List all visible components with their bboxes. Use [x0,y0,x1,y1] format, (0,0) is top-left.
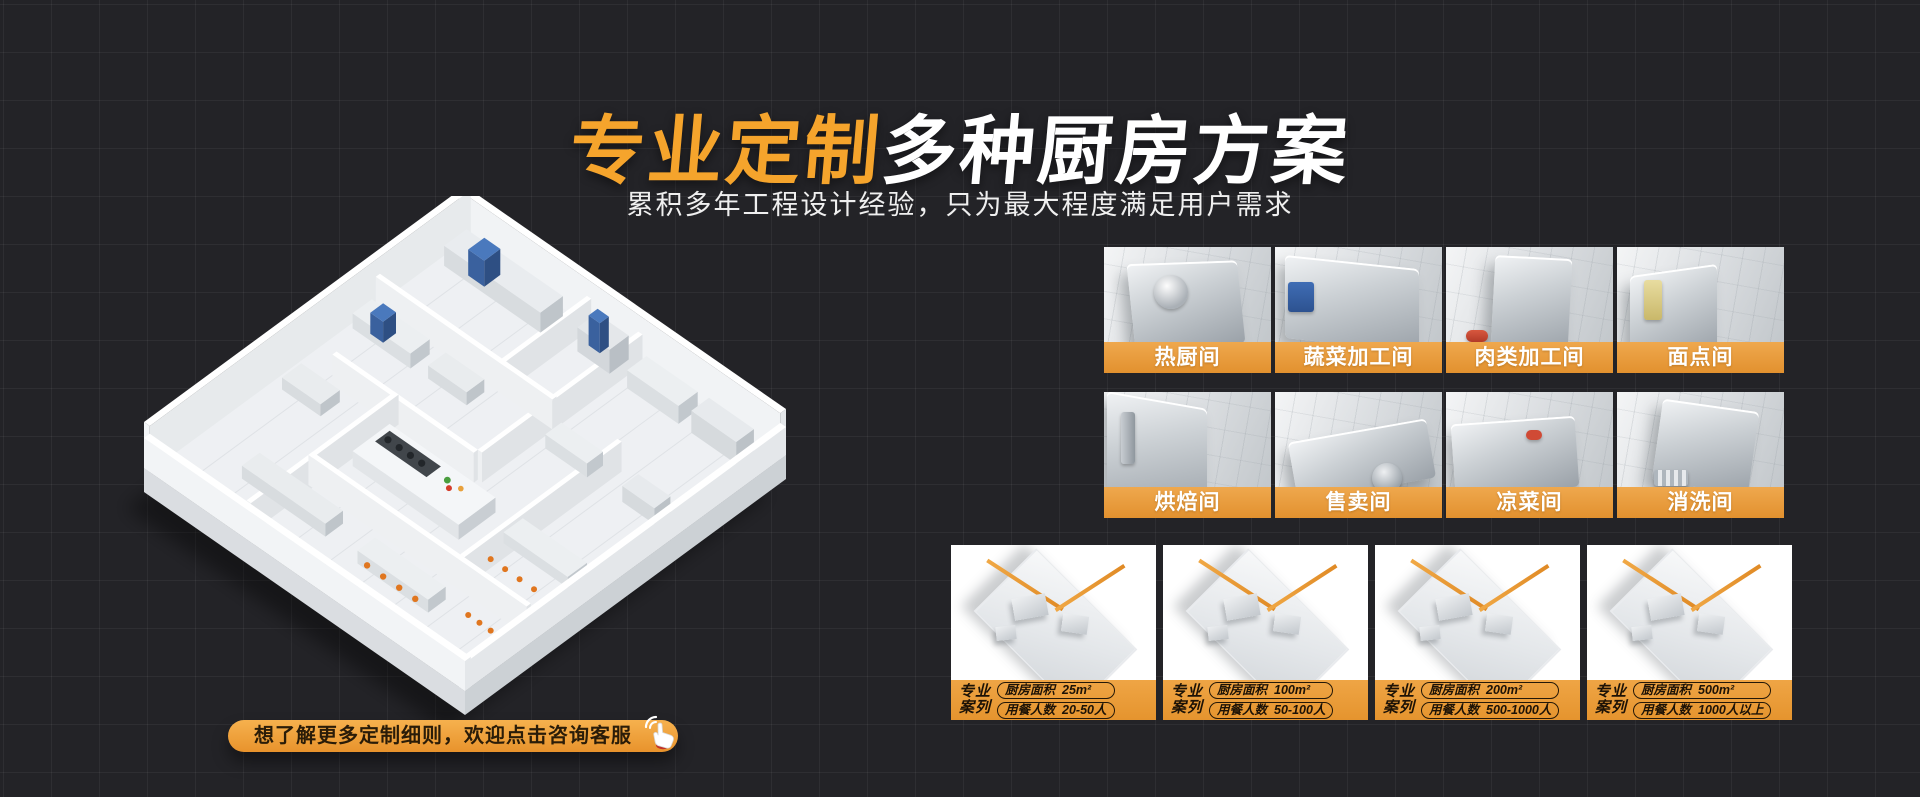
case-specs: 厨房面积25m² 用餐人数20-50人 [997,682,1115,719]
badge-line: 案列 [1171,700,1203,716]
orange-wall-stripe [1267,563,1338,611]
room-tile-label: 热厨间 [1104,342,1271,373]
room-grid-row-2: 烘焙间 售卖间 凉菜间 消洗间 [1104,392,1786,518]
room-tile-label: 蔬菜加工间 [1275,342,1442,373]
tap-hand-icon [638,712,680,754]
case-info-bar: 专业案列 厨房面积200m² 用餐人数500-1000人 [1375,680,1580,720]
equipment-block [995,625,1016,641]
area-value: 100m² [1274,683,1310,698]
room-tile-label: 面点间 [1617,342,1784,373]
badge-line: 专业 [1383,684,1415,700]
area-label: 厨房面积 [1217,683,1267,698]
equipment-block [1419,625,1440,641]
kitchen-area-pill: 厨房面积25m² [997,682,1115,699]
diners-pill: 用餐人数20-50人 [997,702,1115,719]
badge-line: 案列 [1595,700,1627,716]
case-kitchen-render [951,545,1156,680]
equipment-block [1485,613,1513,634]
badge-line: 专业 [1171,684,1203,700]
equipment-block [1435,594,1472,622]
area-value: 25m² [1062,683,1091,698]
room-tile-label: 售卖间 [1275,487,1442,518]
page-title-highlight: 专业定制 [566,109,885,193]
area-label: 厨房面积 [1429,683,1479,698]
case-badge: 专业案列 [1595,684,1627,716]
equipment-block [1207,625,1228,641]
room-tile-dishwashing: 消洗间 [1617,392,1784,518]
case-kitchen-render [1375,545,1580,680]
page-title: 专业定制多种厨房方案 [0,108,1920,194]
diners-pill: 用餐人数50-100人 [1209,702,1333,719]
orange-wall-stripe [1055,563,1126,611]
room-tile-cold-dishes: 凉菜间 [1446,392,1613,518]
case-card-100m2: 专业案列 厨房面积100m² 用餐人数50-100人 [1163,545,1368,720]
equipment-block [1061,613,1089,634]
case-info-bar: 专业案列 厨房面积25m² 用餐人数20-50人 [951,680,1156,720]
orange-wall-stripe [1479,563,1550,611]
case-info-bar: 专业案列 厨房面积500m² 用餐人数1000人以上 [1587,680,1792,720]
diners-value: 500-1000人 [1486,703,1551,718]
area-label: 厨房面积 [1641,683,1691,698]
diners-value: 50-100人 [1274,703,1325,718]
case-specs: 厨房面积500m² 用餐人数1000人以上 [1633,682,1771,719]
diners-label: 用餐人数 [1429,703,1479,718]
equipment-block [1273,613,1301,634]
case-badge: 专业案列 [959,684,991,716]
room-tile-hot-kitchen: 热厨间 [1104,247,1271,373]
equipment-block [1631,625,1652,641]
kitchen-floorplan-3d-illustration [88,196,808,736]
room-tile-baking: 烘焙间 [1104,392,1271,518]
area-value: 500m² [1698,683,1734,698]
contact-support-button[interactable]: 想了解更多定制细则，欢迎点击咨询客服 [228,720,678,752]
room-tile-meat-processing: 肉类加工间 [1446,247,1613,373]
kitchen-solutions-banner: 专业定制多种厨房方案 累积多年工程设计经验，只为最大程度满足用户需求 热厨间 蔬… [0,0,1920,797]
equipment-block [1647,594,1684,622]
case-kitchen-render [1587,545,1792,680]
room-tile-label: 肉类加工间 [1446,342,1613,373]
steam-pot-shape [1154,275,1188,309]
kitchen-area-pill: 厨房面积100m² [1209,682,1333,699]
room-tile-label: 烘焙间 [1104,487,1271,518]
contact-support-label: 想了解更多定制细则，欢迎点击咨询客服 [254,725,632,747]
case-card-500m2: 专业案列 厨房面积500m² 用餐人数1000人以上 [1587,545,1792,720]
room-types-grid: 热厨间 蔬菜加工间 肉类加工间 面点间 烘焙间 售卖间 [1104,247,1786,518]
case-badge: 专业案列 [1383,684,1415,716]
meat-shape [1466,330,1488,342]
case-card-200m2: 专业案列 厨房面积200m² 用餐人数500-1000人 [1375,545,1580,720]
case-specs: 厨房面积200m² 用餐人数500-1000人 [1421,682,1559,719]
page-title-rest: 多种厨房方案 [878,109,1353,193]
diners-value: 20-50人 [1062,703,1106,718]
room-tile-label: 凉菜间 [1446,487,1613,518]
case-studies-row: 专业案列 厨房面积25m² 用餐人数20-50人 专业案列 厨房面积100m² … [951,545,1792,720]
badge-line: 专业 [959,684,991,700]
case-kitchen-render [1163,545,1368,680]
red-bowl-shape [1526,430,1542,440]
diners-pill: 用餐人数1000人以上 [1633,702,1771,719]
room-tile-label: 消洗间 [1617,487,1784,518]
diners-pill: 用餐人数500-1000人 [1421,702,1559,719]
badge-line: 专业 [1595,684,1627,700]
diners-label: 用餐人数 [1005,703,1055,718]
orange-wall-stripe [1691,563,1762,611]
room-tile-pastry: 面点间 [1617,247,1784,373]
kitchen-area-pill: 厨房面积500m² [1633,682,1771,699]
case-specs: 厨房面积100m² 用餐人数50-100人 [1209,682,1333,719]
room-tile-vegetable-processing: 蔬菜加工间 [1275,247,1442,373]
dish-rack-shape [1654,470,1688,486]
case-badge: 专业案列 [1171,684,1203,716]
badge-line: 案列 [959,700,991,716]
room-tile-serving: 售卖间 [1275,392,1442,518]
blue-crate-shape [1288,282,1314,312]
room-grid-row-1: 热厨间 蔬菜加工间 肉类加工间 面点间 [1104,247,1786,373]
oven-rack-shape [1644,280,1662,320]
case-card-25m2: 专业案列 厨房面积25m² 用餐人数20-50人 [951,545,1156,720]
equipment-block [1697,613,1725,634]
equipment-block [1011,594,1048,622]
case-info-bar: 专业案列 厨房面积100m² 用餐人数50-100人 [1163,680,1368,720]
area-value: 200m² [1486,683,1522,698]
diners-value: 1000人以上 [1698,703,1763,718]
badge-line: 案列 [1383,700,1415,716]
diners-label: 用餐人数 [1641,703,1691,718]
oven-column-shape [1121,412,1135,464]
area-label: 厨房面积 [1005,683,1055,698]
kitchen-area-pill: 厨房面积200m² [1421,682,1559,699]
diners-label: 用餐人数 [1217,703,1267,718]
equipment-block [1223,594,1260,622]
